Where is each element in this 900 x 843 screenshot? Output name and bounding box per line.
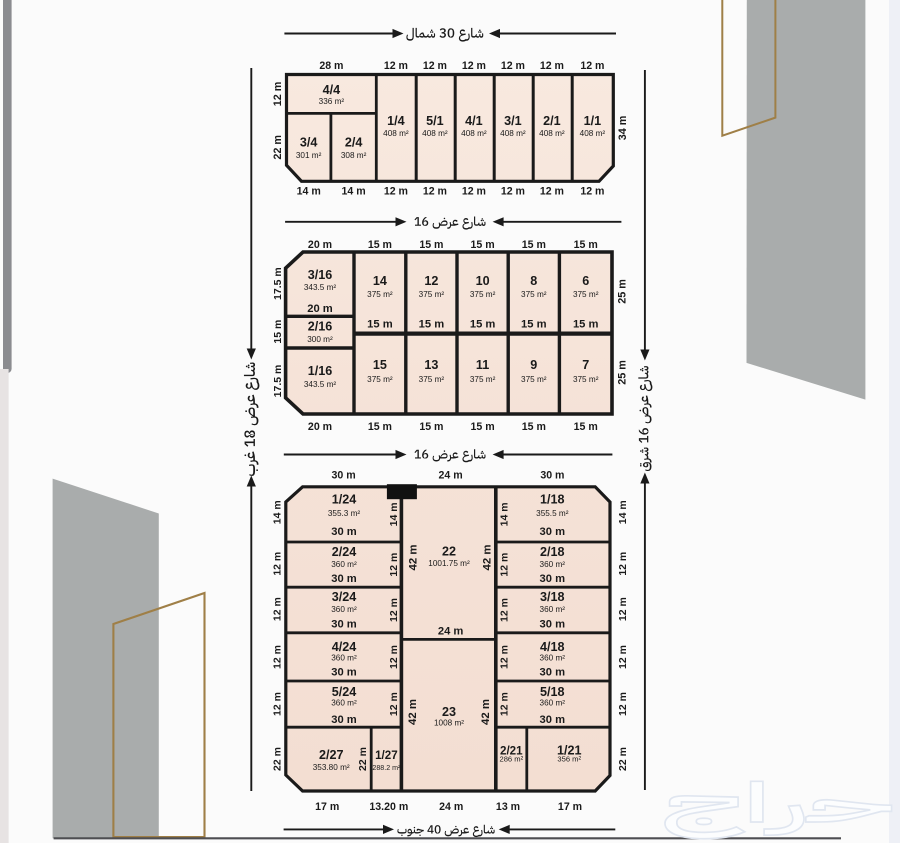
- svg-text:408 m²: 408 m²: [383, 129, 409, 138]
- svg-text:3/18: 3/18: [540, 590, 565, 604]
- svg-text:15: 15: [373, 358, 387, 372]
- svg-text:375 m²: 375 m²: [367, 290, 393, 299]
- svg-text:8: 8: [530, 274, 537, 288]
- svg-text:7: 7: [582, 358, 589, 372]
- svg-text:343.5 m²: 343.5 m²: [304, 283, 337, 292]
- svg-text:6: 6: [582, 274, 589, 288]
- svg-text:15 m: 15 m: [419, 421, 443, 433]
- svg-text:375 m²: 375 m²: [573, 290, 599, 299]
- svg-text:12 m: 12 m: [617, 552, 629, 576]
- svg-text:12 m: 12 m: [617, 597, 629, 621]
- svg-text:34 m: 34 m: [617, 116, 629, 141]
- svg-text:4/4: 4/4: [323, 83, 341, 97]
- svg-text:12 m: 12 m: [540, 186, 564, 198]
- svg-text:355.5 m²: 355.5 m²: [536, 509, 569, 518]
- svg-text:12 m: 12 m: [498, 598, 510, 622]
- svg-text:12 m: 12 m: [501, 60, 525, 72]
- svg-text:12 m: 12 m: [617, 692, 629, 716]
- svg-text:30 m: 30 m: [540, 714, 566, 726]
- svg-text:30 m: 30 m: [331, 526, 357, 538]
- svg-text:12 m: 12 m: [501, 186, 525, 198]
- svg-text:15 m: 15 m: [573, 318, 599, 330]
- svg-text:13 m: 13 m: [496, 801, 520, 813]
- svg-text:360 m²: 360 m²: [331, 699, 357, 708]
- svg-text:24 m: 24 m: [439, 801, 463, 813]
- svg-text:15 m: 15 m: [574, 239, 598, 251]
- svg-text:30 m: 30 m: [332, 470, 356, 482]
- svg-text:375 m²: 375 m²: [573, 375, 599, 384]
- svg-text:375 m²: 375 m²: [521, 290, 547, 299]
- svg-text:14 m: 14 m: [297, 186, 321, 198]
- svg-text:15 m: 15 m: [522, 239, 546, 251]
- svg-text:22 m: 22 m: [272, 135, 284, 160]
- svg-text:408 m²: 408 m²: [580, 129, 606, 138]
- svg-text:12 m: 12 m: [388, 553, 400, 577]
- svg-text:12 m: 12 m: [272, 692, 284, 716]
- svg-text:17.5 m: 17.5 m: [272, 365, 284, 398]
- svg-text:4/18: 4/18: [540, 640, 565, 654]
- svg-text:360 m²: 360 m²: [331, 653, 357, 662]
- svg-text:42 m: 42 m: [407, 699, 419, 725]
- svg-text:2/4: 2/4: [345, 136, 363, 150]
- svg-text:408 m²: 408 m²: [500, 129, 526, 138]
- svg-text:12 m: 12 m: [423, 60, 447, 72]
- svg-text:12 m: 12 m: [540, 60, 564, 72]
- svg-text:2/16: 2/16: [308, 319, 333, 333]
- svg-text:12 m: 12 m: [617, 645, 629, 669]
- svg-text:24 m: 24 m: [438, 626, 464, 638]
- svg-text:42 m: 42 m: [480, 699, 492, 725]
- svg-text:13: 13: [424, 358, 438, 372]
- svg-text:12 m: 12 m: [388, 692, 400, 716]
- svg-text:1/18: 1/18: [540, 493, 565, 507]
- svg-text:12 m: 12 m: [498, 645, 510, 669]
- svg-text:375 m²: 375 m²: [470, 290, 496, 299]
- svg-text:360 m²: 360 m²: [331, 605, 357, 614]
- svg-text:14: 14: [373, 274, 387, 288]
- svg-text:1/27: 1/27: [375, 749, 398, 762]
- svg-text:300 m²: 300 m²: [307, 335, 333, 344]
- svg-text:5/1: 5/1: [426, 114, 444, 128]
- svg-text:308 m²: 308 m²: [341, 151, 367, 160]
- svg-text:353.80 m²: 353.80 m²: [313, 763, 350, 772]
- svg-text:30 m: 30 m: [540, 573, 566, 585]
- svg-text:375 m²: 375 m²: [367, 375, 393, 384]
- svg-text:356 m²: 356 m²: [557, 755, 581, 764]
- svg-text:12 m: 12 m: [272, 82, 284, 107]
- svg-text:25 m: 25 m: [617, 360, 629, 385]
- svg-text:10: 10: [476, 274, 490, 288]
- svg-text:2/24: 2/24: [332, 545, 357, 559]
- svg-text:12 m: 12 m: [462, 186, 486, 198]
- svg-text:15 m: 15 m: [272, 320, 284, 344]
- svg-text:408 m²: 408 m²: [422, 129, 448, 138]
- svg-text:14 m: 14 m: [342, 186, 366, 198]
- svg-text:2/27: 2/27: [319, 748, 344, 762]
- svg-text:17 m: 17 m: [558, 801, 582, 813]
- svg-text:20 m: 20 m: [308, 239, 332, 251]
- svg-text:3/1: 3/1: [504, 114, 522, 128]
- svg-text:12 m: 12 m: [384, 60, 408, 72]
- svg-text:30 m: 30 m: [331, 714, 357, 726]
- svg-text:12 m: 12 m: [423, 186, 447, 198]
- svg-text:17 m: 17 m: [315, 801, 339, 813]
- svg-text:12 m: 12 m: [388, 598, 400, 622]
- svg-text:14 m: 14 m: [617, 500, 629, 524]
- svg-text:375 m²: 375 m²: [419, 290, 445, 299]
- svg-text:30 m: 30 m: [331, 667, 357, 679]
- svg-text:22 m: 22 m: [272, 747, 284, 771]
- svg-text:4/24: 4/24: [332, 640, 357, 654]
- svg-text:360 m²: 360 m²: [540, 653, 566, 662]
- svg-text:12 m: 12 m: [462, 60, 486, 72]
- svg-text:2/18: 2/18: [540, 545, 565, 559]
- svg-text:15 m: 15 m: [521, 318, 547, 330]
- svg-text:1001.75 m²: 1001.75 m²: [428, 559, 470, 568]
- svg-text:30 m: 30 m: [331, 573, 357, 585]
- svg-text:12 m: 12 m: [388, 645, 400, 669]
- svg-text:15 m: 15 m: [419, 318, 445, 330]
- svg-text:12 m: 12 m: [272, 645, 284, 669]
- svg-text:360 m²: 360 m²: [540, 605, 566, 614]
- svg-text:12 m: 12 m: [384, 186, 408, 198]
- svg-text:1/24: 1/24: [332, 493, 357, 507]
- svg-text:14 m: 14 m: [498, 502, 510, 526]
- svg-text:301 m²: 301 m²: [296, 151, 322, 160]
- svg-text:11: 11: [476, 358, 489, 372]
- svg-text:12 m: 12 m: [272, 552, 284, 576]
- svg-text:22 m: 22 m: [357, 747, 369, 771]
- svg-text:25 m: 25 m: [617, 279, 629, 304]
- svg-text:30 m: 30 m: [540, 470, 564, 482]
- svg-text:1/16: 1/16: [308, 364, 333, 378]
- svg-text:20 m: 20 m: [308, 421, 332, 433]
- svg-text:14 m: 14 m: [272, 500, 284, 524]
- svg-text:12 m: 12 m: [498, 692, 510, 716]
- svg-text:360 m²: 360 m²: [540, 699, 566, 708]
- svg-text:24 m: 24 m: [439, 470, 463, 482]
- svg-text:1/1: 1/1: [584, 114, 602, 128]
- svg-text:30 m: 30 m: [540, 619, 566, 631]
- svg-text:9: 9: [530, 358, 537, 372]
- svg-text:336 m²: 336 m²: [319, 97, 345, 106]
- svg-text:3/24: 3/24: [332, 590, 357, 604]
- svg-text:343.5 m²: 343.5 m²: [304, 380, 337, 389]
- svg-text:15 m: 15 m: [574, 421, 598, 433]
- svg-text:408 m²: 408 m²: [539, 129, 565, 138]
- svg-text:12: 12: [424, 274, 438, 288]
- svg-text:15 m: 15 m: [368, 421, 392, 433]
- svg-text:360 m²: 360 m²: [331, 560, 357, 569]
- svg-text:12 m: 12 m: [272, 597, 284, 621]
- svg-text:14 m: 14 m: [388, 502, 400, 526]
- svg-text:13.20 m: 13.20 m: [369, 801, 408, 813]
- svg-text:3/4: 3/4: [300, 136, 318, 150]
- svg-text:15 m: 15 m: [470, 318, 496, 330]
- svg-text:28 m: 28 m: [319, 60, 343, 72]
- svg-text:3/16: 3/16: [308, 268, 333, 282]
- svg-text:15 m: 15 m: [368, 239, 392, 251]
- svg-text:22: 22: [442, 545, 456, 559]
- svg-text:1/4: 1/4: [387, 114, 405, 128]
- svg-text:375 m²: 375 m²: [419, 375, 445, 384]
- svg-text:15 m: 15 m: [367, 318, 393, 330]
- svg-text:20 m: 20 m: [307, 303, 333, 315]
- svg-text:30 m: 30 m: [331, 619, 357, 631]
- svg-text:375 m²: 375 m²: [470, 375, 496, 384]
- svg-text:4/1: 4/1: [465, 114, 483, 128]
- svg-text:12 m: 12 m: [580, 186, 604, 198]
- svg-text:30 m: 30 m: [540, 667, 566, 679]
- svg-text:15 m: 15 m: [471, 421, 495, 433]
- svg-text:375 m²: 375 m²: [521, 375, 547, 384]
- svg-text:42 m: 42 m: [482, 545, 494, 571]
- svg-text:12 m: 12 m: [580, 60, 604, 72]
- svg-text:17.5 m: 17.5 m: [272, 267, 284, 300]
- svg-text:30 m: 30 m: [540, 526, 566, 538]
- svg-text:1008 m²: 1008 m²: [434, 719, 464, 728]
- svg-text:42 m: 42 m: [407, 545, 419, 571]
- svg-text:5/18: 5/18: [540, 685, 565, 699]
- svg-text:408 m²: 408 m²: [461, 129, 487, 138]
- svg-text:360 m²: 360 m²: [540, 560, 566, 569]
- svg-text:15 m: 15 m: [419, 239, 443, 251]
- svg-text:286 m²: 286 m²: [499, 755, 523, 764]
- svg-text:288.2 m²: 288.2 m²: [372, 764, 401, 772]
- svg-text:355.3 m²: 355.3 m²: [328, 509, 361, 518]
- svg-text:22 m: 22 m: [617, 747, 629, 771]
- svg-text:5/24: 5/24: [332, 685, 357, 699]
- svg-text:12 m: 12 m: [498, 553, 510, 577]
- svg-text:2/1: 2/1: [543, 114, 561, 128]
- svg-text:15 m: 15 m: [522, 421, 546, 433]
- svg-text:15 m: 15 m: [471, 239, 495, 251]
- svg-text:23: 23: [442, 705, 456, 719]
